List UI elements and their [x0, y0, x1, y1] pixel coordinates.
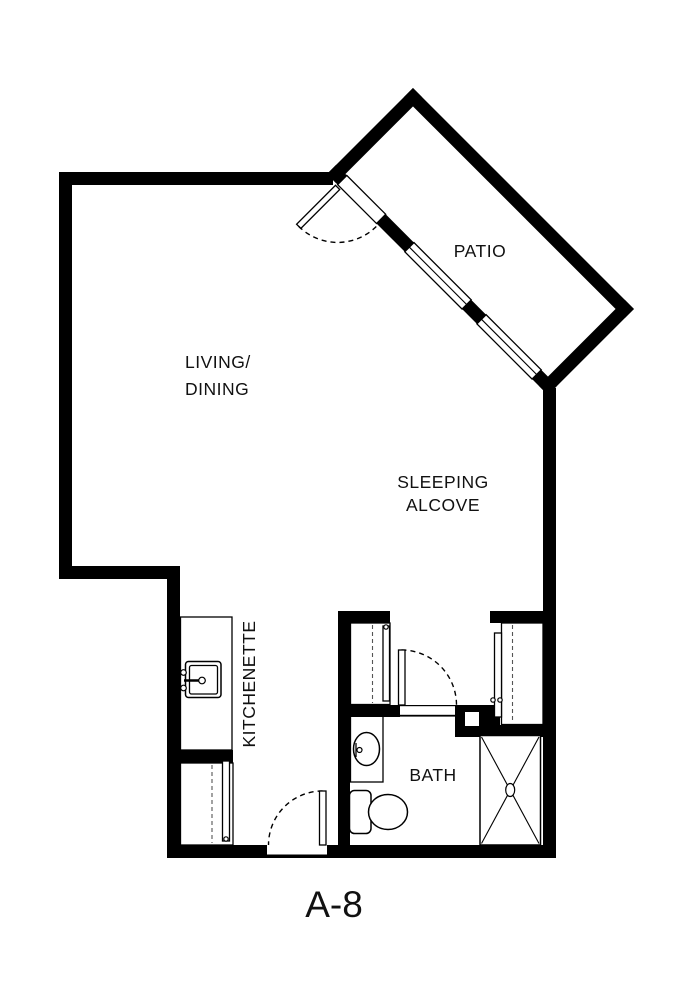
floorplan-drawing: LIVING/ DINING PATIO SLEEPING ALCOVE KIT… — [0, 0, 697, 998]
living-dining-label-line1: LIVING/ — [185, 352, 251, 372]
bathroom-sink-icon — [354, 733, 380, 766]
dressing-closet-left-knob — [384, 625, 388, 629]
dressing-closet-left — [351, 623, 391, 705]
kitchenette-area — [181, 617, 233, 750]
left-closet-top-wall — [338, 611, 390, 623]
bath-door-swing-arc — [402, 650, 457, 705]
wall-notch — [465, 712, 479, 726]
entry-door-swing-arc — [269, 791, 323, 845]
dressing-closet-right — [491, 623, 543, 725]
bath-top-wall-left — [350, 705, 400, 717]
dressing-closet-right-door — [495, 633, 502, 717]
sleeping-alcove-label-line1: SLEEPING — [397, 472, 489, 492]
shower-drain — [506, 784, 515, 797]
floorplan-page: LIVING/ DINING PATIO SLEEPING ALCOVE KIT… — [0, 0, 697, 998]
dressing-closet-right-knob-1 — [491, 698, 495, 702]
kitchen-closet-door — [223, 761, 230, 841]
living-dining-label-line2: DINING — [185, 379, 249, 399]
kitchen-closet-knob — [224, 837, 228, 841]
left-wall — [59, 172, 72, 578]
sleeping-alcove-label-line2: ALCOVE — [406, 495, 480, 515]
kitchenette-label: KITCHENETTE — [239, 620, 259, 747]
bath-threshold-line-bottom — [400, 715, 455, 717]
left-lower-wall — [167, 566, 180, 858]
entry-threshold-line — [267, 855, 327, 857]
patio-structure — [287, 88, 634, 435]
patio-door-leaf — [297, 185, 340, 228]
entry-door — [267, 791, 327, 856]
bath-vanity — [351, 716, 384, 782]
kitchen-sink-icon — [181, 662, 221, 698]
step-wall — [59, 566, 180, 579]
plan-title: A-8 — [305, 884, 363, 925]
bath-label: BATH — [409, 765, 456, 785]
bath-door — [399, 650, 457, 717]
bottom-wall — [167, 845, 556, 858]
bath-threshold-line-top — [400, 705, 455, 706]
patio-label: PATIO — [454, 241, 506, 261]
bath-left-wall — [338, 611, 350, 845]
shower-icon — [480, 736, 541, 846]
entry-door-leaf — [320, 791, 327, 845]
bath-door-leaf — [399, 650, 406, 705]
toilet-icon — [350, 791, 408, 834]
kitchen-closet — [181, 761, 234, 845]
right-closet-top-wall — [490, 611, 556, 623]
dressing-closet-right-knob-2 — [498, 698, 502, 702]
top-wall — [59, 172, 333, 185]
dressing-closet-left-door — [383, 626, 390, 701]
entry-threshold — [267, 845, 327, 855]
